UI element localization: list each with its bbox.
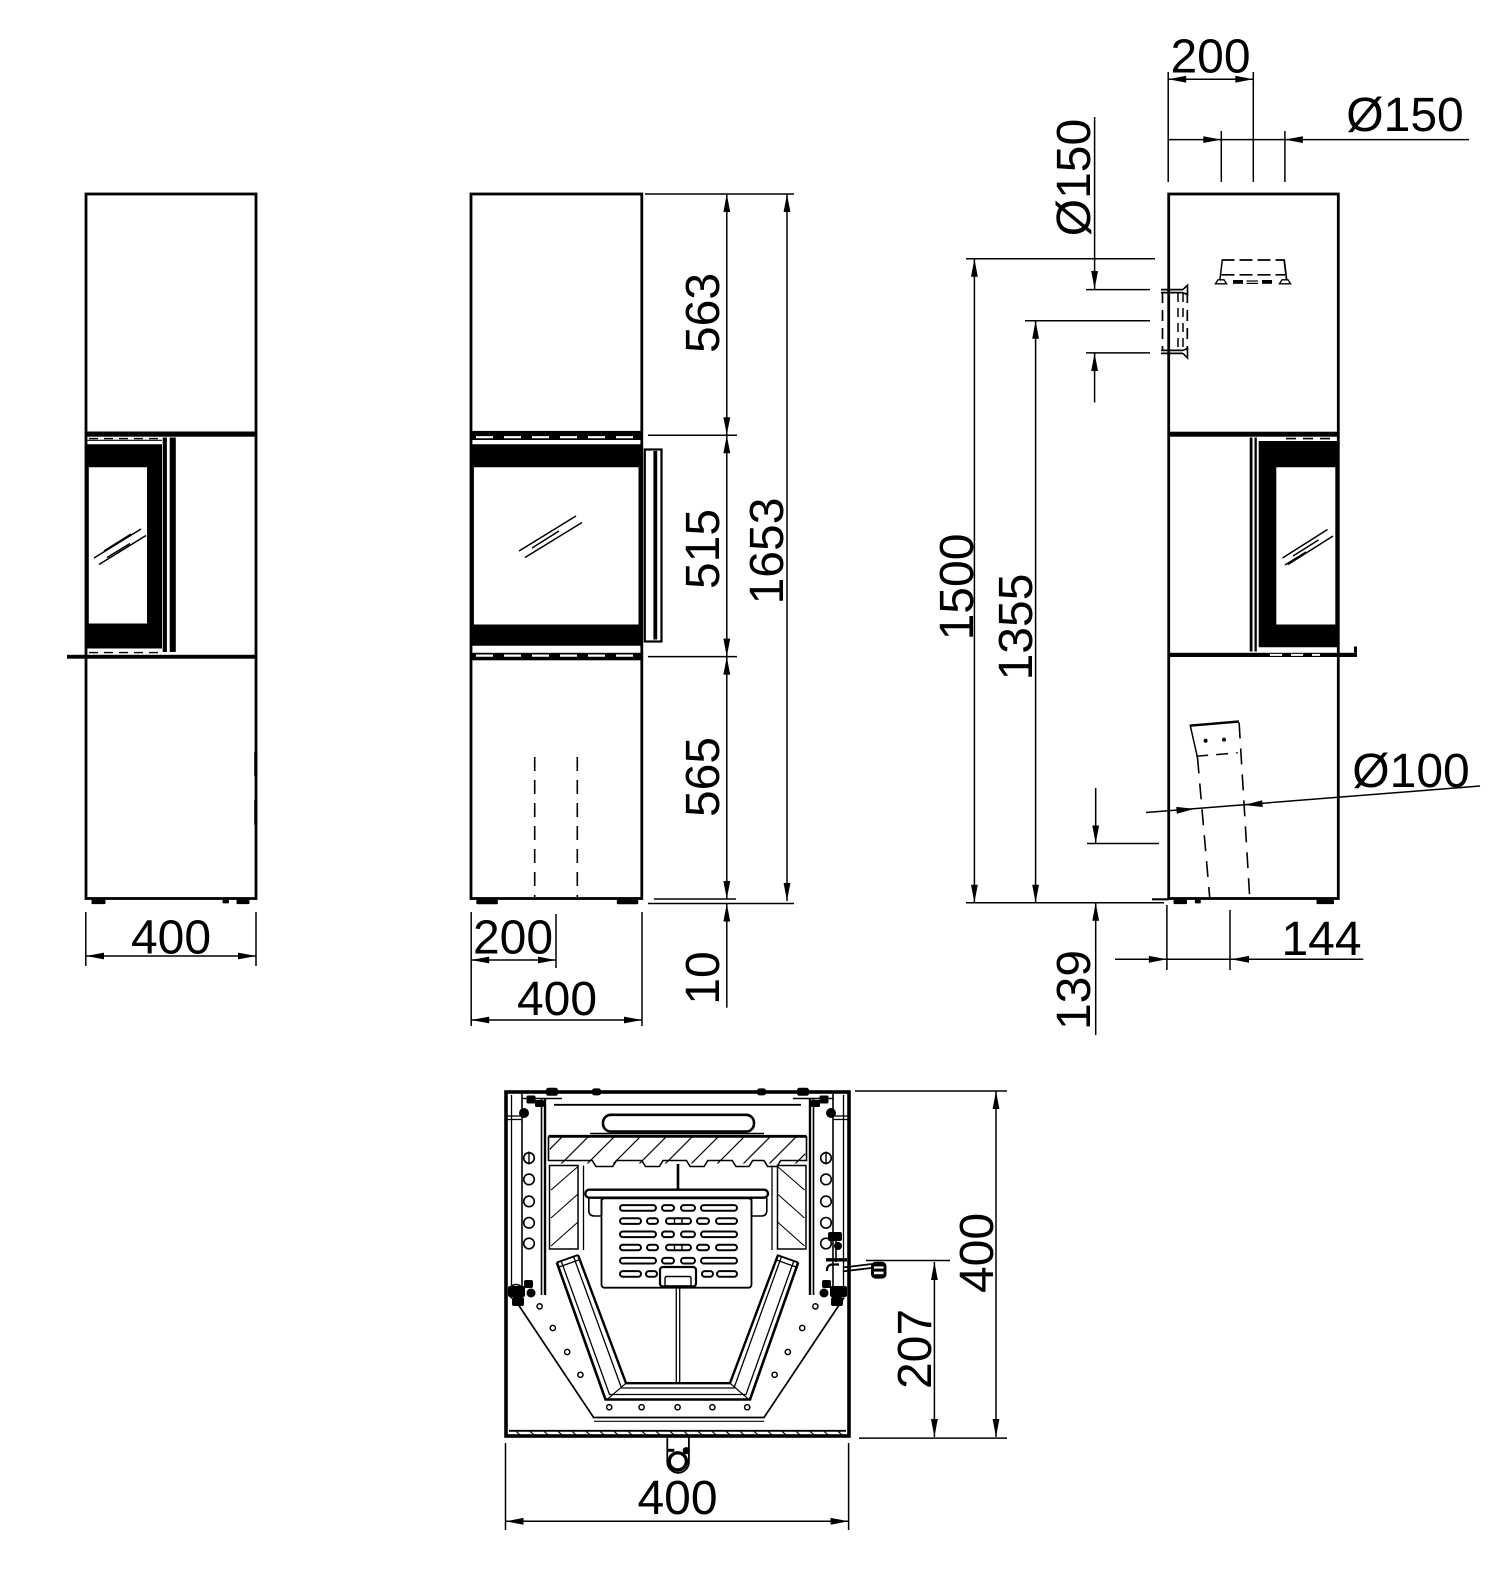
- svg-text:400: 400: [951, 1213, 1004, 1293]
- svg-text:1653: 1653: [741, 498, 794, 605]
- svg-text:207: 207: [889, 1309, 942, 1389]
- svg-text:1500: 1500: [931, 534, 984, 641]
- svg-text:400: 400: [131, 912, 211, 965]
- svg-text:400: 400: [637, 1472, 717, 1525]
- svg-text:515: 515: [677, 509, 730, 589]
- svg-text:Ø150: Ø150: [1048, 119, 1101, 236]
- svg-text:565: 565: [677, 737, 730, 817]
- svg-text:200: 200: [1170, 31, 1250, 84]
- svg-text:139: 139: [1048, 950, 1101, 1030]
- svg-text:400: 400: [517, 973, 597, 1026]
- svg-text:10: 10: [677, 951, 730, 1004]
- svg-text:1355: 1355: [990, 574, 1043, 681]
- svg-text:Ø150: Ø150: [1346, 89, 1463, 142]
- svg-text:144: 144: [1281, 913, 1361, 966]
- svg-text:563: 563: [677, 273, 730, 353]
- svg-text:200: 200: [473, 912, 553, 965]
- svg-text:Ø100: Ø100: [1352, 745, 1469, 798]
